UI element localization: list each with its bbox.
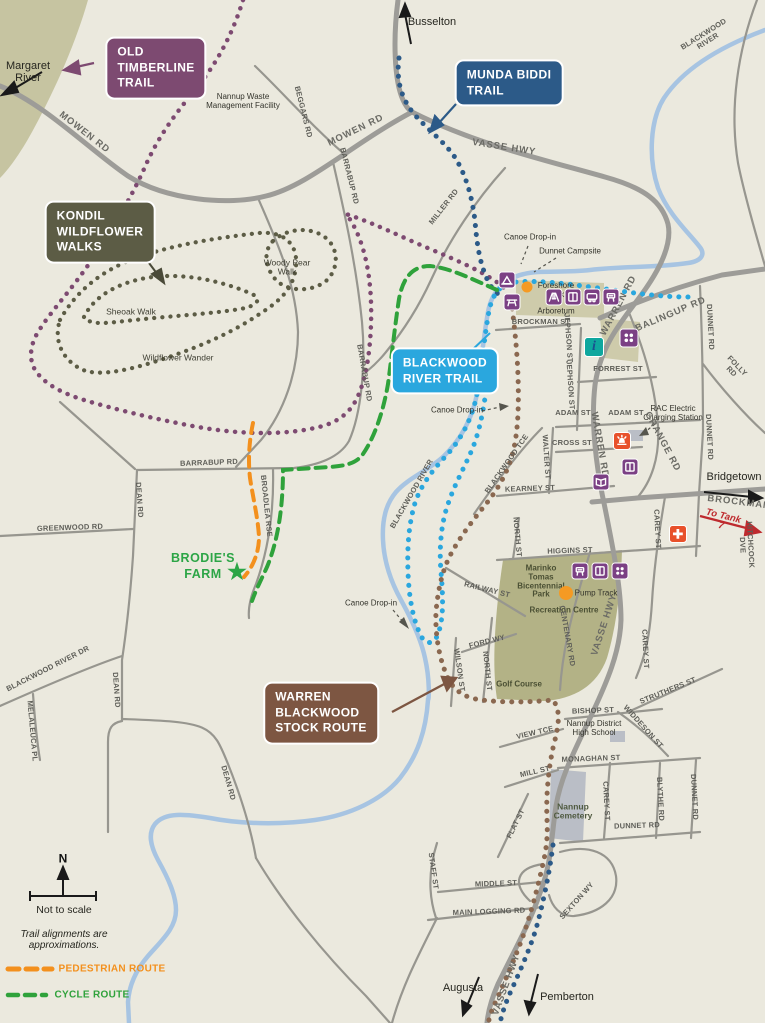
kondil-wildflower-walks-callout: KONDIL WILDFLOWER WALKS bbox=[45, 201, 156, 264]
direction-arrows bbox=[2, 4, 762, 1015]
blackwood-river-trail-callout: BLACKWOOD RIVER TRAIL bbox=[391, 347, 499, 394]
playground-swing-icon bbox=[546, 289, 563, 306]
old-timberline-trail-callout: OLD TIMBERLINE TRAIL bbox=[105, 37, 206, 100]
warren-blackwood-stock-route-callout: WARREN BLACKWOOD STOCK ROUTE bbox=[263, 682, 379, 745]
toilets-icon-3 bbox=[592, 563, 609, 580]
campsite-icon bbox=[499, 272, 516, 289]
map-canvas bbox=[0, 0, 765, 1023]
visitor-info-icon: i bbox=[584, 337, 604, 357]
foreshore-park-marker bbox=[522, 282, 533, 293]
old-timberline-arrow bbox=[64, 61, 94, 74]
toilets-icon bbox=[565, 289, 582, 306]
stock-route-arrow bbox=[392, 677, 456, 712]
picnic-icon bbox=[504, 294, 521, 311]
nannup-trails-map: Margaret RiverBusseltonNannup Waste Mana… bbox=[0, 0, 765, 1023]
toilets-icon-2 bbox=[622, 459, 639, 476]
school-building bbox=[610, 731, 625, 742]
playground-icon-2 bbox=[612, 563, 629, 580]
legend-samples bbox=[8, 969, 52, 995]
caravan-icon bbox=[584, 289, 601, 306]
playground-icon bbox=[620, 329, 639, 348]
compass-rose bbox=[30, 867, 96, 901]
tank7-arrow bbox=[700, 516, 760, 535]
munda-biddi-trail-callout: MUNDA BIDDI TRAIL bbox=[455, 59, 564, 106]
emergency-services-icon bbox=[613, 432, 631, 450]
info-glyph: i bbox=[592, 340, 596, 354]
gallery-icon bbox=[593, 474, 610, 491]
bbq-icon bbox=[603, 289, 620, 306]
hospital-icon bbox=[669, 525, 687, 543]
brodies-farm-star: ★ bbox=[226, 561, 248, 583]
pump-track-marker bbox=[559, 586, 573, 600]
bbq-icon-2 bbox=[572, 563, 589, 580]
